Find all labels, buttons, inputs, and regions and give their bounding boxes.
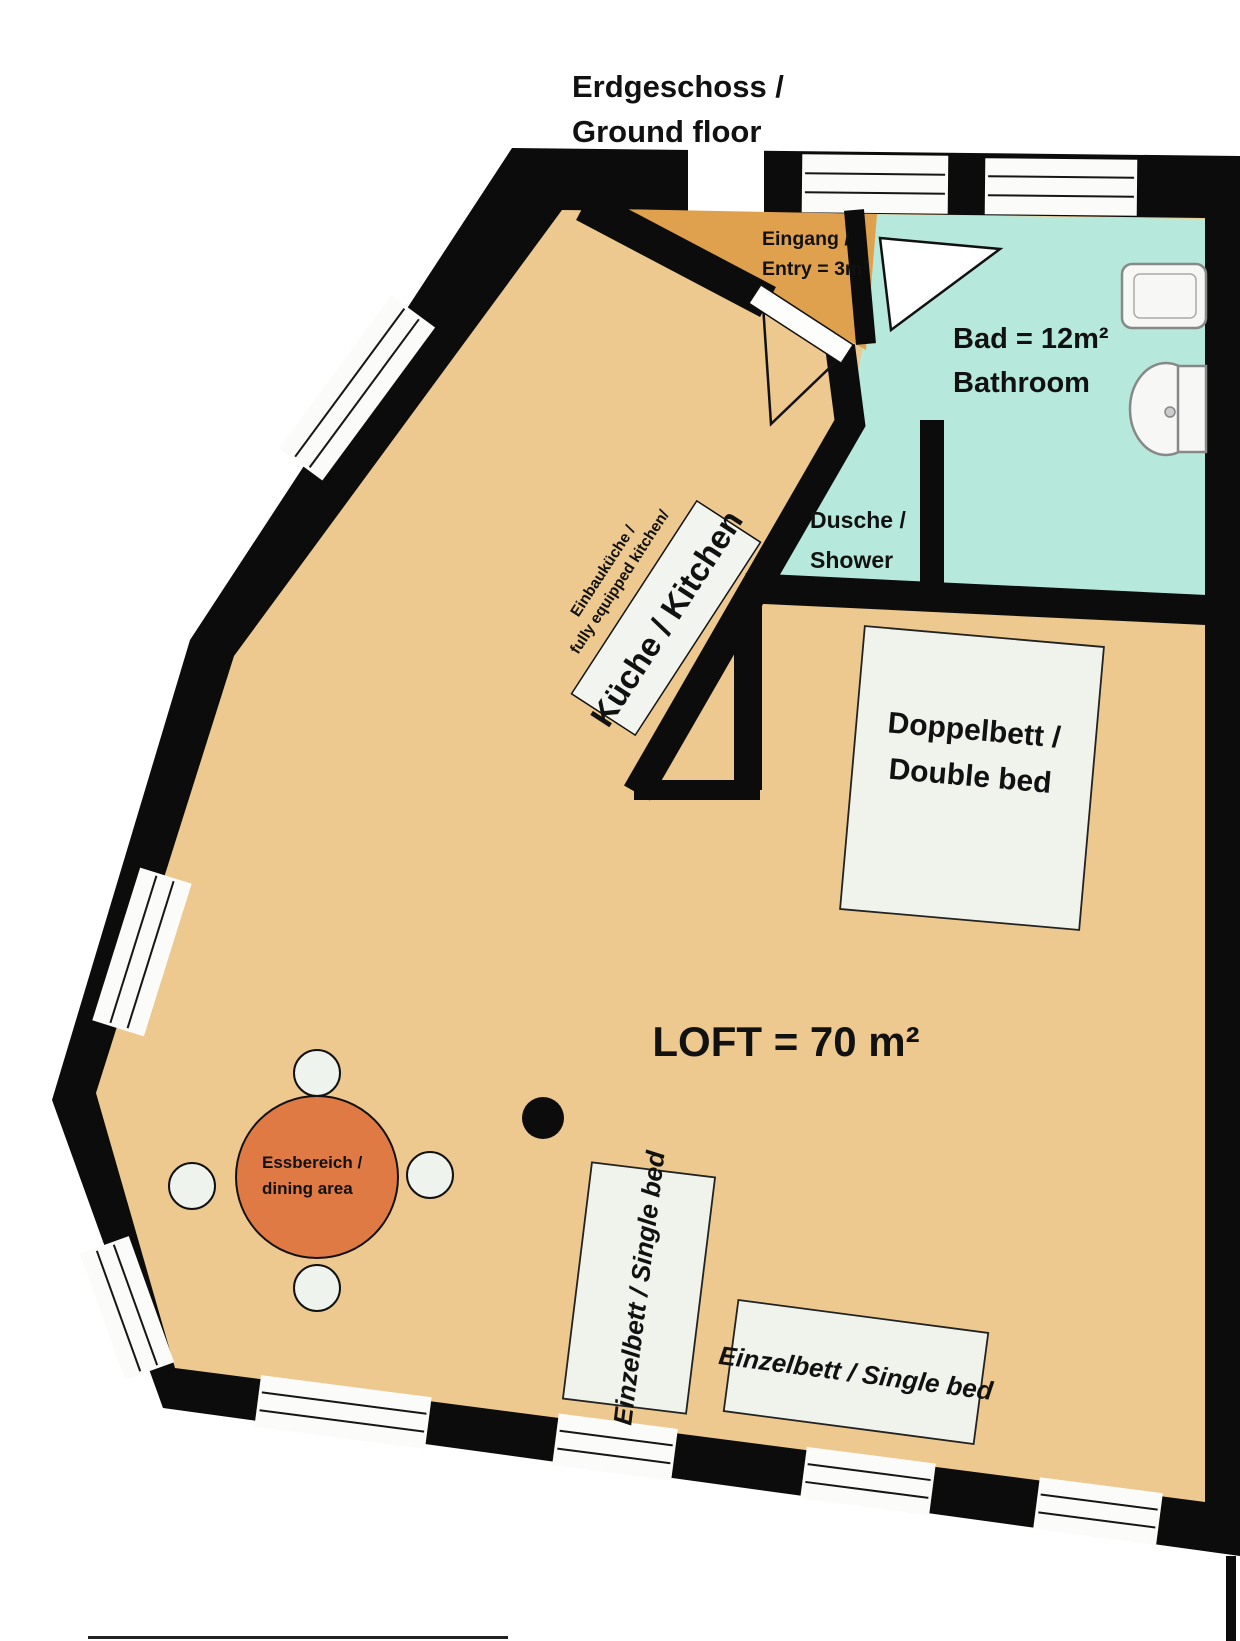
bottom-border-line xyxy=(88,1636,508,1639)
entry-label-line1: Eingang / xyxy=(762,228,850,250)
sink xyxy=(1122,264,1206,328)
dining-table xyxy=(236,1096,398,1258)
dining-chair-left xyxy=(169,1163,215,1209)
top-door-opening xyxy=(688,145,764,215)
shower-label-line2: Shower xyxy=(810,547,893,573)
dining-label-line2: dining area xyxy=(262,1179,353,1198)
dining-chair-bottom xyxy=(294,1265,340,1311)
column-dot xyxy=(522,1097,564,1139)
dining-label-line1: Essbereich / xyxy=(262,1153,362,1172)
window-top-1 xyxy=(802,154,949,214)
page-title-line1: Erdgeschoss / xyxy=(572,69,784,104)
dining-chair-right xyxy=(407,1152,453,1198)
toilet xyxy=(1130,363,1206,455)
bathroom-label-line2: Bathroom xyxy=(953,367,1090,399)
floor-plan-page: Küche / Kitchen Einbauküche / fully equi… xyxy=(0,0,1240,1641)
bathroom-label-line1: Bad = 12m² xyxy=(953,323,1109,355)
double-bed: Doppelbett / Double bed xyxy=(840,626,1104,930)
right-border-line xyxy=(1226,1556,1236,1641)
page-title-line2: Ground floor xyxy=(572,114,761,149)
dining-chair-top xyxy=(294,1050,340,1096)
loft-label: LOFT = 70 m² xyxy=(652,1018,919,1065)
floor-plan-drawing: Küche / Kitchen Einbauküche / fully equi… xyxy=(0,0,1240,1641)
window-top-2 xyxy=(985,158,1138,216)
entry-label-line2: Entry = 3m² xyxy=(762,258,869,280)
shower-label-line1: Dusche / xyxy=(810,507,906,533)
